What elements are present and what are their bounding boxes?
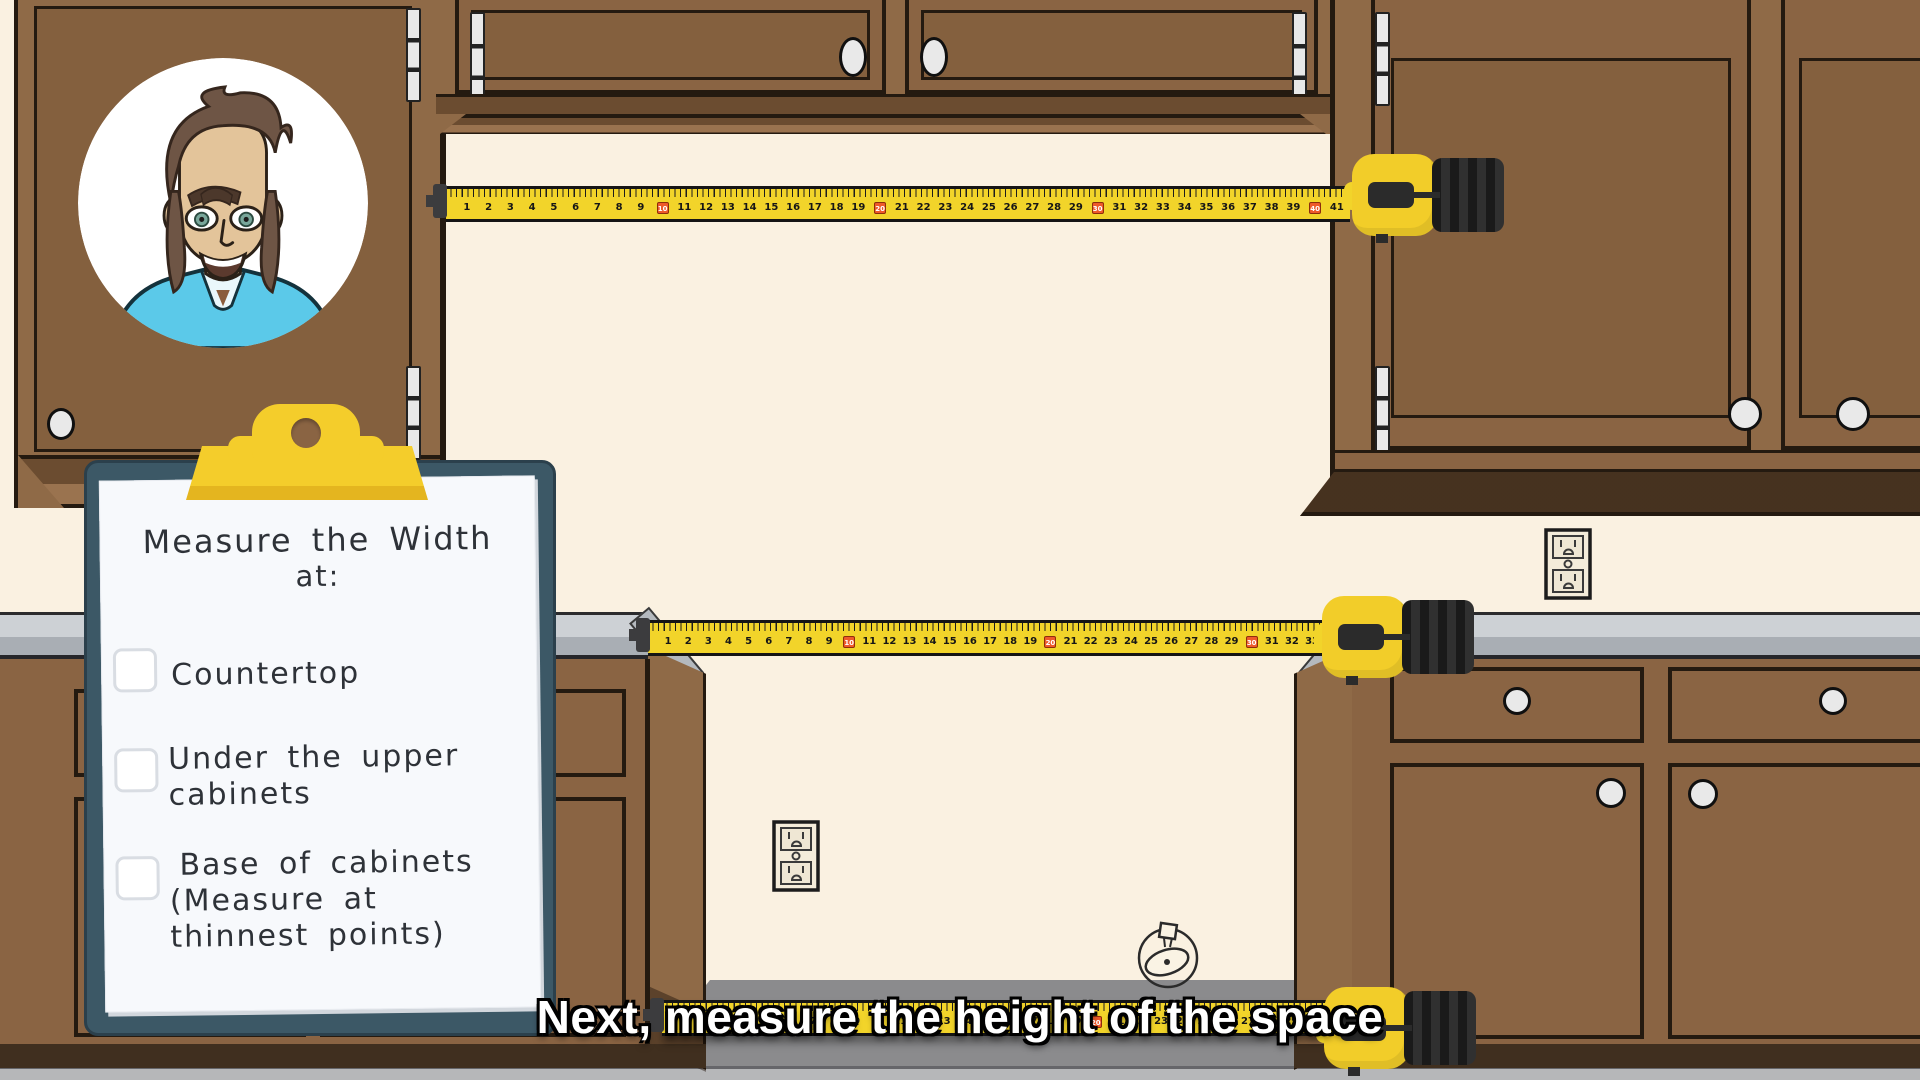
checkbox-under-upper-cabinets[interactable] (114, 748, 159, 793)
checklist-item-under-upper-cabinets: Under the upper cabinets (168, 738, 460, 814)
upper-left-hinge-bottom (406, 366, 421, 460)
tape-scale: 1234567891011121314151617181920212223242… (658, 630, 1322, 653)
base-right-drawer-knob-1 (1503, 687, 1531, 715)
pushpin-icon (1134, 918, 1202, 990)
tape-blade-countertop: 1234567891011121314151617181920212223242… (648, 620, 1324, 656)
tape-measure-body-1 (1344, 152, 1504, 242)
upper-right-knob-right (1836, 397, 1870, 431)
base-right-door-knob-1 (1596, 778, 1626, 808)
clipboard-title-line2: at: (100, 555, 536, 596)
upper-cabinet-right (1330, 0, 1920, 516)
clipboard-title: Measure the Width at: (99, 519, 536, 596)
video-subtitle: Next, measure the height of the space (0, 990, 1920, 1044)
tape-scale: 1234567891011121314151617181920212223242… (456, 196, 1348, 219)
checklist-item-countertop: Countertop (171, 656, 360, 694)
outlet-upper-right (1544, 528, 1592, 600)
tape-blade-under-upper-cabinets: 1234567891011121314151617181920212223242… (446, 186, 1350, 222)
clipboard-clip-hole (291, 418, 321, 448)
checkbox-countertop[interactable] (113, 648, 158, 693)
tape-hook-2 (636, 618, 650, 652)
upper-middle-molding (440, 114, 1326, 134)
upper-right-knob-left (1728, 397, 1762, 431)
checkbox-base-of-cabinets[interactable] (115, 856, 160, 901)
upper-middle-knob-left (839, 37, 867, 77)
tape-hook-1 (433, 184, 447, 218)
upper-middle-rail (436, 94, 1330, 114)
upper-right-soffit (1300, 472, 1920, 516)
kitchen-scene: 1234567891011121314151617181920212223242… (0, 0, 1920, 1080)
upper-right-hinge-top (1375, 12, 1390, 106)
clipboard-title-line1: Measure the Width (99, 519, 535, 560)
floor (0, 1066, 1920, 1080)
upper-left-hinge-top (406, 8, 421, 102)
tape-measure-body-2 (1314, 594, 1474, 684)
base-right-drawer-knob-2 (1819, 687, 1847, 715)
presenter-avatar (78, 58, 368, 348)
upper-middle-door-left (455, 0, 886, 94)
upper-middle-door-right (905, 0, 1318, 94)
base-right-drawer-2 (1668, 667, 1920, 743)
upper-left-door-knob (47, 408, 75, 440)
upper-right-hinge-bottom (1375, 366, 1390, 460)
base-right-door-knob-2 (1688, 779, 1718, 809)
toe-kick-left (0, 1044, 706, 1068)
upper-right-rail (1335, 450, 1920, 472)
outlet-lower-middle (772, 820, 820, 892)
upper-cabinet-middle (436, 0, 1330, 134)
checklist-item-base-of-cabinets: Base of cabinets (Measure at thinnest po… (169, 844, 474, 956)
clipboard-paper: Measure the Width at: Countertop Under t… (99, 475, 541, 1012)
upper-middle-knob-right (920, 37, 948, 77)
upper-right-door-right (1781, 0, 1920, 450)
